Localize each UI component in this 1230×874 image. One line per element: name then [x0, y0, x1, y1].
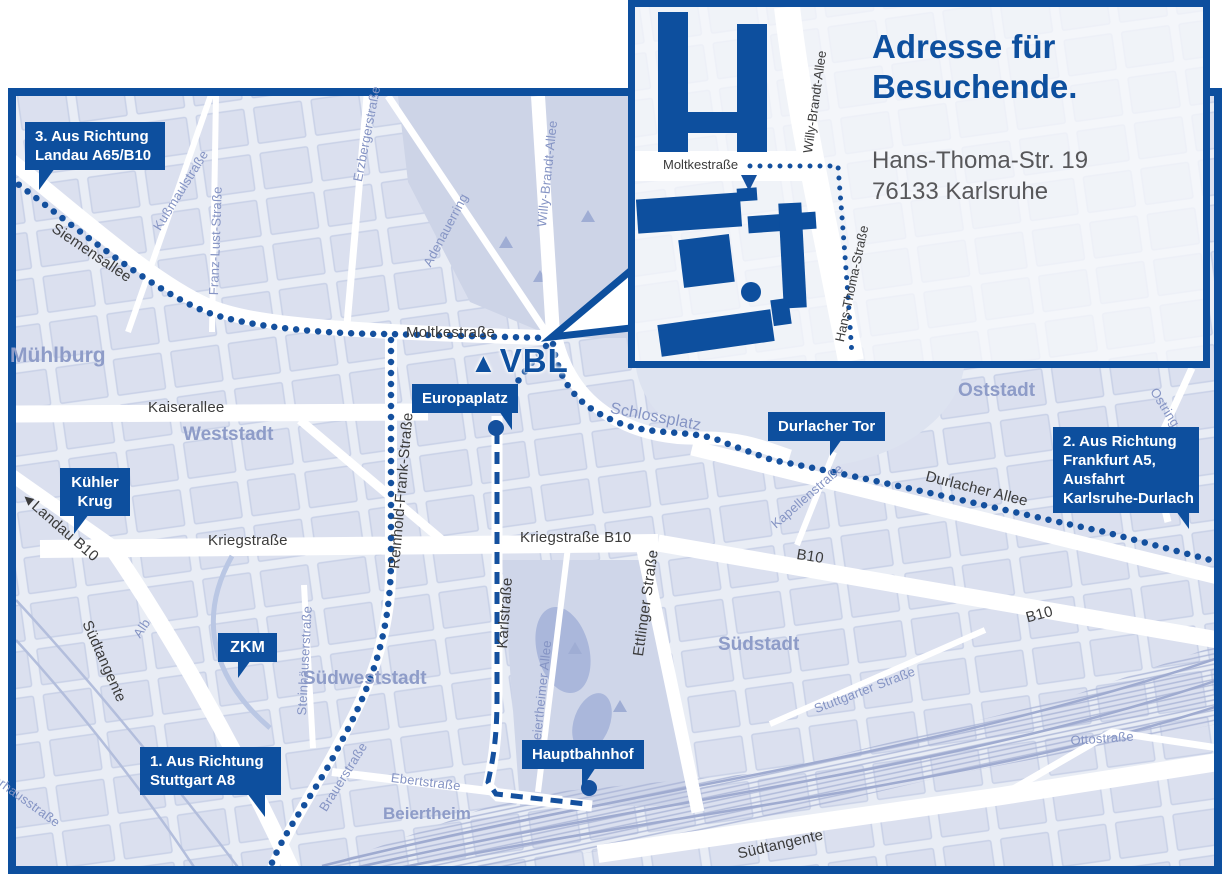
district-label-suedstadt: Südstadt	[718, 634, 799, 656]
badge-line: 1. Aus Richtung	[150, 752, 271, 771]
badge-tail	[39, 168, 55, 190]
district-label-oststadt: Oststadt	[958, 380, 1035, 402]
badge-europaplatz: Europaplatz	[412, 384, 518, 413]
inset-callout: Moltkestraße Willy-Brandt-Allee Hans-Tho…	[628, 0, 1210, 368]
street-label-kriegstrasse: Kriegstraße	[208, 532, 288, 549]
badge-line: Ausfahrt	[1063, 470, 1189, 489]
badge-tail	[1176, 511, 1189, 529]
district-label-suedweststadt: Südweststadt	[303, 668, 427, 690]
vbl-triangle-icon: ▲	[470, 348, 498, 378]
badge-durlacher-tor: Durlacher Tor	[768, 412, 885, 441]
badge-route-2-frankfurt: 2. Aus Richtung Frankfurt A5, Ausfahrt K…	[1053, 427, 1199, 513]
badge-line: Landau A65/B10	[35, 146, 155, 165]
inset-address-line: 76133 Karlsruhe	[872, 178, 1048, 205]
vbl-logo: ▲VBL	[470, 342, 569, 380]
badge-zkm: ZKM	[218, 633, 277, 662]
inset-title: Adresse für Besuchende.	[872, 27, 1077, 107]
inset-street-moltkestrasse: Moltkestraße	[663, 157, 738, 172]
badge-line: Europaplatz	[422, 389, 508, 408]
vbl-logo-text: VBL	[500, 342, 569, 379]
badge-tail	[247, 793, 265, 817]
badge-tail	[830, 439, 842, 456]
badge-tail	[499, 411, 512, 430]
badge-line: Hauptbahnhof	[532, 745, 634, 764]
badge-tail	[582, 767, 596, 788]
street-label-kriegstrasse-b10: Kriegstraße B10	[520, 529, 631, 546]
badge-line: 3. Aus Richtung	[35, 127, 155, 146]
badge-line: Stuttgart A8	[150, 771, 271, 790]
inset-title-line: Besuchende.	[872, 68, 1077, 105]
inset-address: Hans-Thoma-Str. 19 76133 Karlsruhe	[872, 145, 1088, 207]
street-label-kaiserallee: Kaiserallee	[148, 399, 224, 416]
badge-kuehler-krug: Kühler Krug	[60, 468, 130, 516]
street-label-moltkestrasse: Moltkestraße	[406, 324, 495, 341]
badge-line: Kühler	[70, 473, 120, 492]
badge-route-3-landau: 3. Aus Richtung Landau A65/B10	[25, 122, 165, 170]
badge-hauptbahnhof: Hauptbahnhof	[522, 740, 644, 769]
badge-line: 2. Aus Richtung	[1063, 432, 1189, 451]
badge-line: Durlacher Tor	[778, 417, 875, 436]
inset-title-line: Adresse für	[872, 28, 1055, 65]
district-label-weststadt: Weststadt	[183, 424, 273, 446]
badge-line: Karlsruhe-Durlach	[1063, 489, 1189, 508]
map-page: Siemensallee Kußmaulstraße Franz-Lust-St…	[0, 0, 1230, 874]
badge-line: Krug	[70, 492, 120, 511]
district-label-beiertheim: Beiertheim	[383, 804, 471, 824]
district-label-muehlburg: Mühlburg	[10, 344, 106, 368]
badge-line: Frankfurt A5,	[1063, 451, 1189, 470]
badge-tail	[238, 660, 251, 678]
inset-address-line: Hans-Thoma-Str. 19	[872, 147, 1088, 174]
badge-route-1-stuttgart: 1. Aus Richtung Stuttgart A8	[140, 747, 281, 795]
badge-tail	[74, 514, 89, 534]
badge-line: ZKM	[228, 638, 267, 657]
